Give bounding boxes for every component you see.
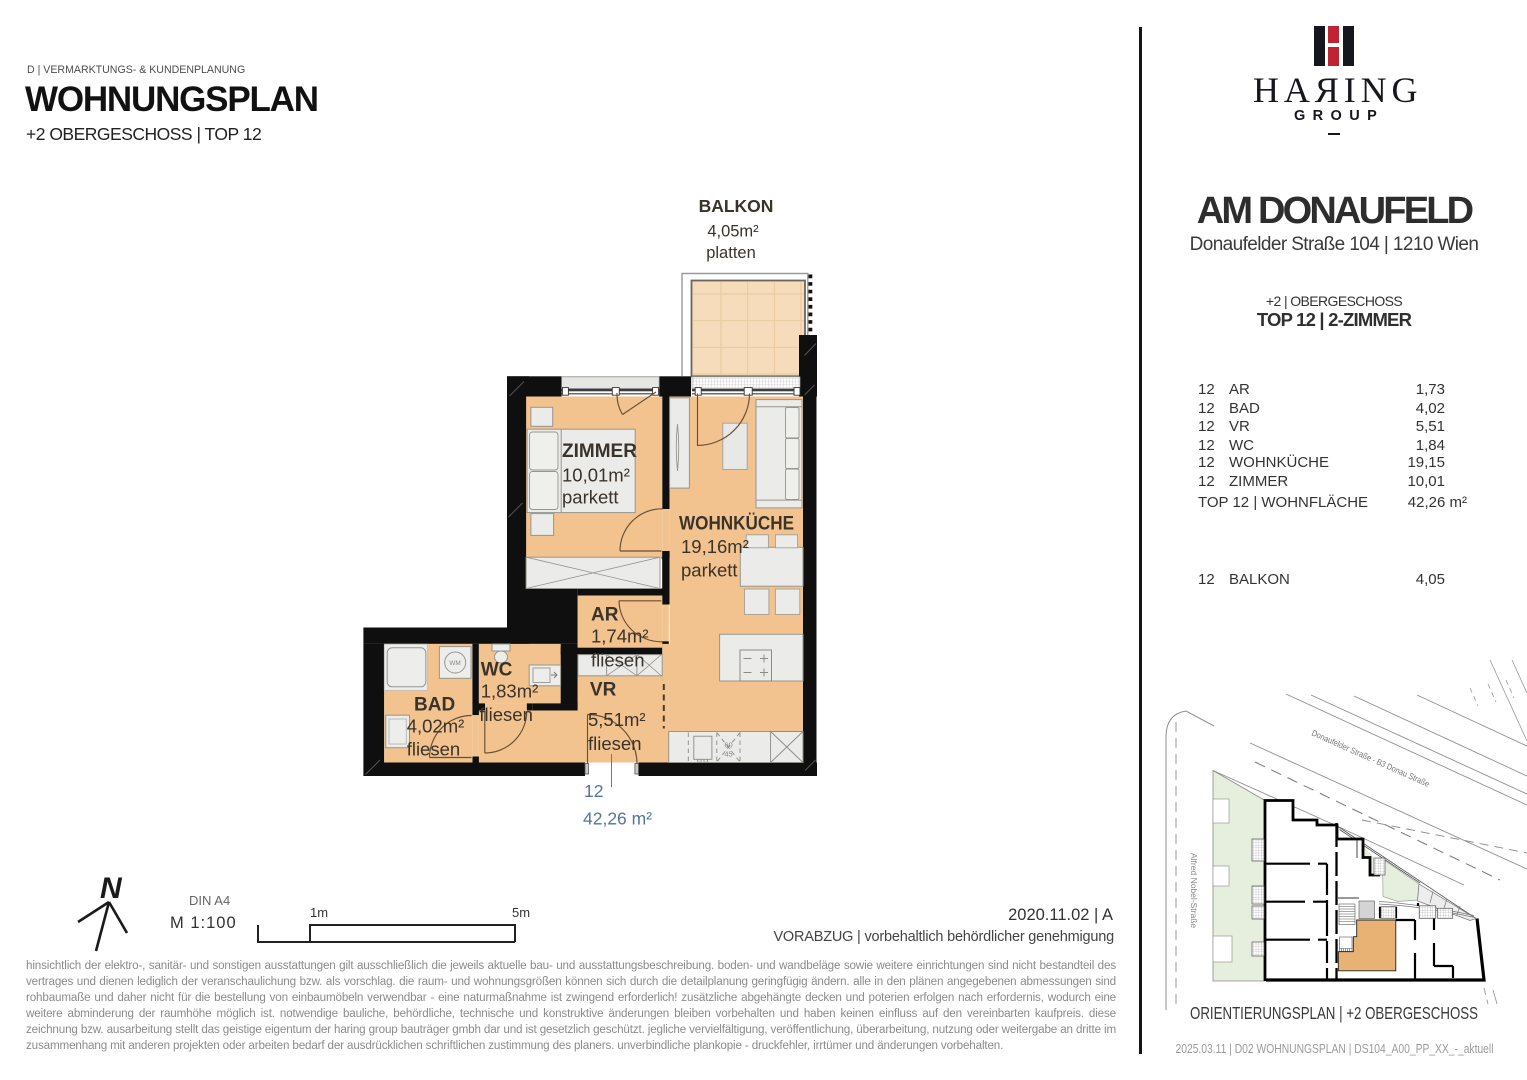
- svg-text:fliesen: fliesen: [591, 650, 644, 671]
- svg-text:42,26 m²: 42,26 m²: [583, 809, 652, 829]
- svg-text:BAD: BAD: [414, 695, 455, 716]
- svg-text:parkett: parkett: [562, 487, 619, 508]
- svg-text:BALKON: BALKON: [699, 196, 774, 216]
- svg-text:1,83m²: 1,83m²: [481, 681, 539, 702]
- svg-text:fliesen: fliesen: [588, 733, 641, 754]
- svg-text:WOHNKÜCHE: WOHNKÜCHE: [679, 514, 794, 535]
- svg-text:WM: WM: [449, 660, 461, 667]
- svg-text:10,01m²: 10,01m²: [562, 465, 630, 486]
- svg-text:5m: 5m: [512, 905, 530, 920]
- svg-text:60: 60: [724, 741, 732, 750]
- svg-text:ORIENTIERUNGSPLAN | +2 OBERGES: ORIENTIERUNGSPLAN | +2 OBERGESCHOSS: [1190, 1003, 1478, 1023]
- svg-text:19,16m²: 19,16m²: [681, 536, 749, 557]
- svg-text:N: N: [100, 872, 123, 905]
- svg-text:1m: 1m: [310, 905, 328, 920]
- svg-text:fliesen: fliesen: [479, 704, 532, 725]
- svg-text:4,02m²: 4,02m²: [407, 716, 465, 737]
- svg-text:Donaufelder Straße - B3 Donau: Donaufelder Straße - B3 Donau Straße: [1310, 728, 1431, 789]
- svg-text:fliesen: fliesen: [407, 739, 460, 760]
- svg-text:AR: AR: [591, 605, 619, 626]
- svg-text:5,51m²: 5,51m²: [588, 709, 646, 730]
- svg-text:Alfred Nobel-Straße: Alfred Nobel-Straße: [1189, 853, 1199, 928]
- svg-text:1,74m²: 1,74m²: [591, 626, 649, 647]
- svg-text:WC: WC: [481, 660, 513, 681]
- svg-text:parkett: parkett: [681, 560, 738, 581]
- svg-text:4,05m²: 4,05m²: [707, 223, 759, 241]
- svg-text:VR: VR: [590, 680, 617, 701]
- svg-text:ZIMMER: ZIMMER: [562, 441, 637, 462]
- svg-text:12: 12: [584, 781, 603, 801]
- svg-text:45: 45: [724, 750, 732, 759]
- svg-text:platten: platten: [706, 244, 756, 262]
- svg-text:2025.03.11 | D02 WOHNUNGSPLAN: 2025.03.11 | D02 WOHNUNGSPLAN | DS104_A0…: [1176, 1042, 1494, 1056]
